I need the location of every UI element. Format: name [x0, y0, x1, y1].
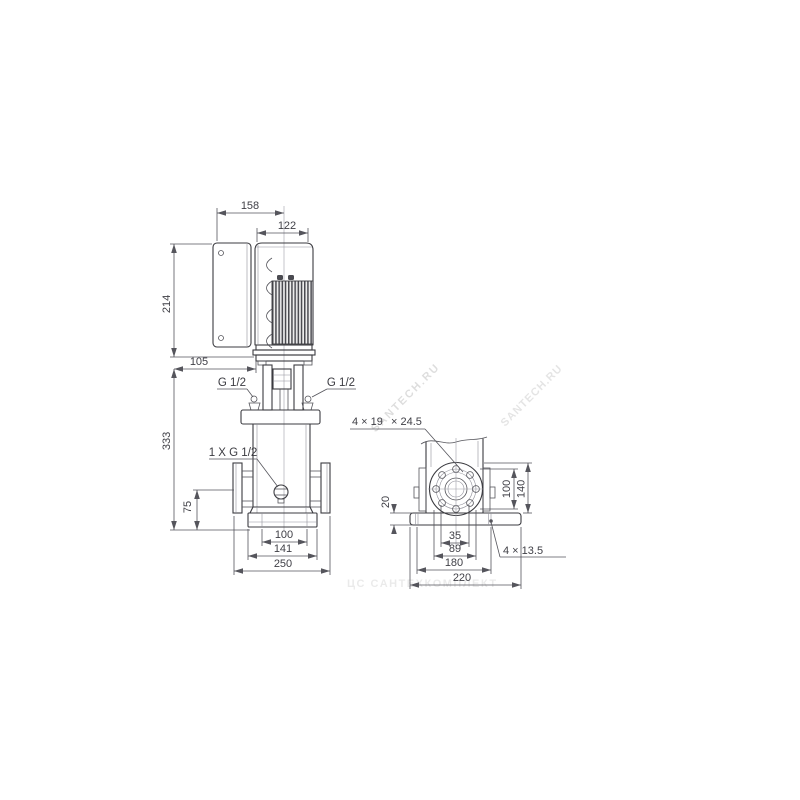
motor-fins	[272, 281, 313, 344]
label-g12-right: G 1/2	[312, 377, 356, 397]
drawing-canvas: SANTECH.RU SANTECH.RU ЦС САНТЕХКОМПЛЕКТ	[0, 0, 800, 800]
watermark-footer: ЦС САНТЕХКОМПЛЕКТ	[347, 578, 498, 590]
svg-text:89: 89	[449, 543, 461, 555]
port-flange-right	[310, 463, 330, 513]
svg-text:1 X G 1/2: 1 X G 1/2	[209, 447, 258, 459]
pump-dimensional-drawing: SANTECH.RU SANTECH.RU ЦС САНТЕХКОМПЛЕКТ	[0, 0, 800, 800]
side-port-plate-right	[483, 468, 490, 511]
dim-214: 214	[161, 244, 254, 357]
svg-text:4 × 19: 4 × 19	[352, 416, 383, 428]
svg-text:× 24.5: × 24.5	[391, 416, 422, 428]
clip	[267, 258, 273, 272]
clip	[267, 334, 273, 348]
side-boss-left	[414, 487, 419, 498]
pump-head-plate	[241, 410, 320, 424]
svg-text:G 1/2: G 1/2	[327, 377, 355, 389]
svg-text:141: 141	[274, 543, 292, 555]
svg-text:180: 180	[445, 557, 463, 569]
pump-base	[248, 507, 317, 527]
dim-flange-holes: 4 × 19 × 24.5	[350, 416, 463, 472]
side-sleeve	[421, 437, 487, 513]
svg-text:75: 75	[182, 501, 194, 513]
label-drain-port: 1 X G 1/2	[209, 447, 278, 487]
dim-105: 105	[174, 356, 256, 373]
svg-text:100: 100	[501, 480, 513, 498]
clip	[267, 309, 273, 323]
svg-text:105: 105	[190, 356, 208, 368]
dim-122: 122	[257, 220, 308, 242]
svg-text:214: 214	[161, 295, 173, 313]
side-view: 4 × 19 × 24.5 20 100 140	[350, 416, 566, 589]
svg-text:158: 158	[241, 200, 259, 212]
side-base-plate	[410, 513, 521, 525]
dim-20: 20	[380, 496, 412, 534]
svg-text:G 1/2: G 1/2	[218, 377, 246, 389]
svg-text:100: 100	[275, 529, 293, 541]
dim-100-boltcircle: 100	[480, 469, 518, 509]
svg-text:20: 20	[380, 496, 392, 508]
svg-text:250: 250	[274, 558, 292, 570]
side-boss-right	[490, 487, 495, 498]
svg-text:122: 122	[278, 220, 296, 232]
drain-plug	[274, 485, 288, 503]
priming-plug-right	[302, 396, 313, 410]
motor-bolt	[288, 275, 294, 280]
clip	[267, 281, 273, 295]
side-port-plate-left	[419, 468, 426, 511]
svg-text:333: 333	[161, 432, 173, 450]
dim-35: 35	[441, 505, 469, 547]
svg-text:140: 140	[516, 480, 528, 498]
terminal-box	[213, 243, 251, 347]
port-flange-left	[233, 463, 253, 513]
dim-158: 158	[217, 200, 284, 241]
label-g12-left: G 1/2	[217, 377, 253, 397]
priming-plug-left	[249, 396, 260, 410]
dim-75: 75	[182, 490, 234, 530]
svg-text:4 × 13.5: 4 × 13.5	[503, 545, 543, 557]
svg-text:220: 220	[453, 572, 471, 584]
watermark-secondary: SANTECH.RU	[499, 363, 566, 430]
motor-bolt	[277, 275, 283, 280]
front-view: 158 122 214 105 333	[161, 200, 356, 575]
svg-text:35: 35	[449, 530, 461, 542]
